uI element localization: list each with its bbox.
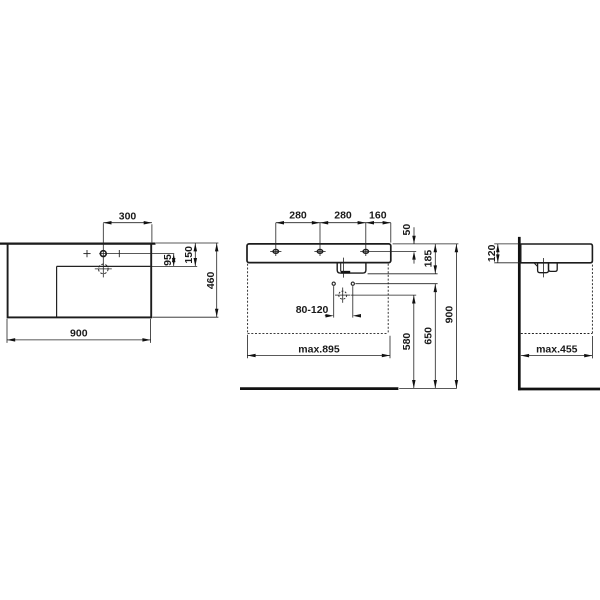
svg-text:80-120: 80-120 xyxy=(296,304,329,316)
svg-text:150: 150 xyxy=(183,246,195,264)
svg-text:650: 650 xyxy=(422,327,434,345)
svg-text:280: 280 xyxy=(334,210,352,222)
svg-text:185: 185 xyxy=(422,250,434,268)
svg-text:160: 160 xyxy=(369,210,387,222)
svg-text:280: 280 xyxy=(289,210,307,222)
svg-text:max.895: max.895 xyxy=(298,343,340,355)
svg-text:max.455: max.455 xyxy=(536,343,578,355)
svg-text:300: 300 xyxy=(119,210,137,222)
svg-text:900: 900 xyxy=(70,327,88,339)
svg-text:580: 580 xyxy=(401,333,413,351)
svg-text:120: 120 xyxy=(486,244,498,262)
svg-text:95: 95 xyxy=(162,254,174,266)
svg-text:50: 50 xyxy=(401,224,413,236)
svg-text:460: 460 xyxy=(205,271,217,289)
svg-text:900: 900 xyxy=(444,306,456,324)
